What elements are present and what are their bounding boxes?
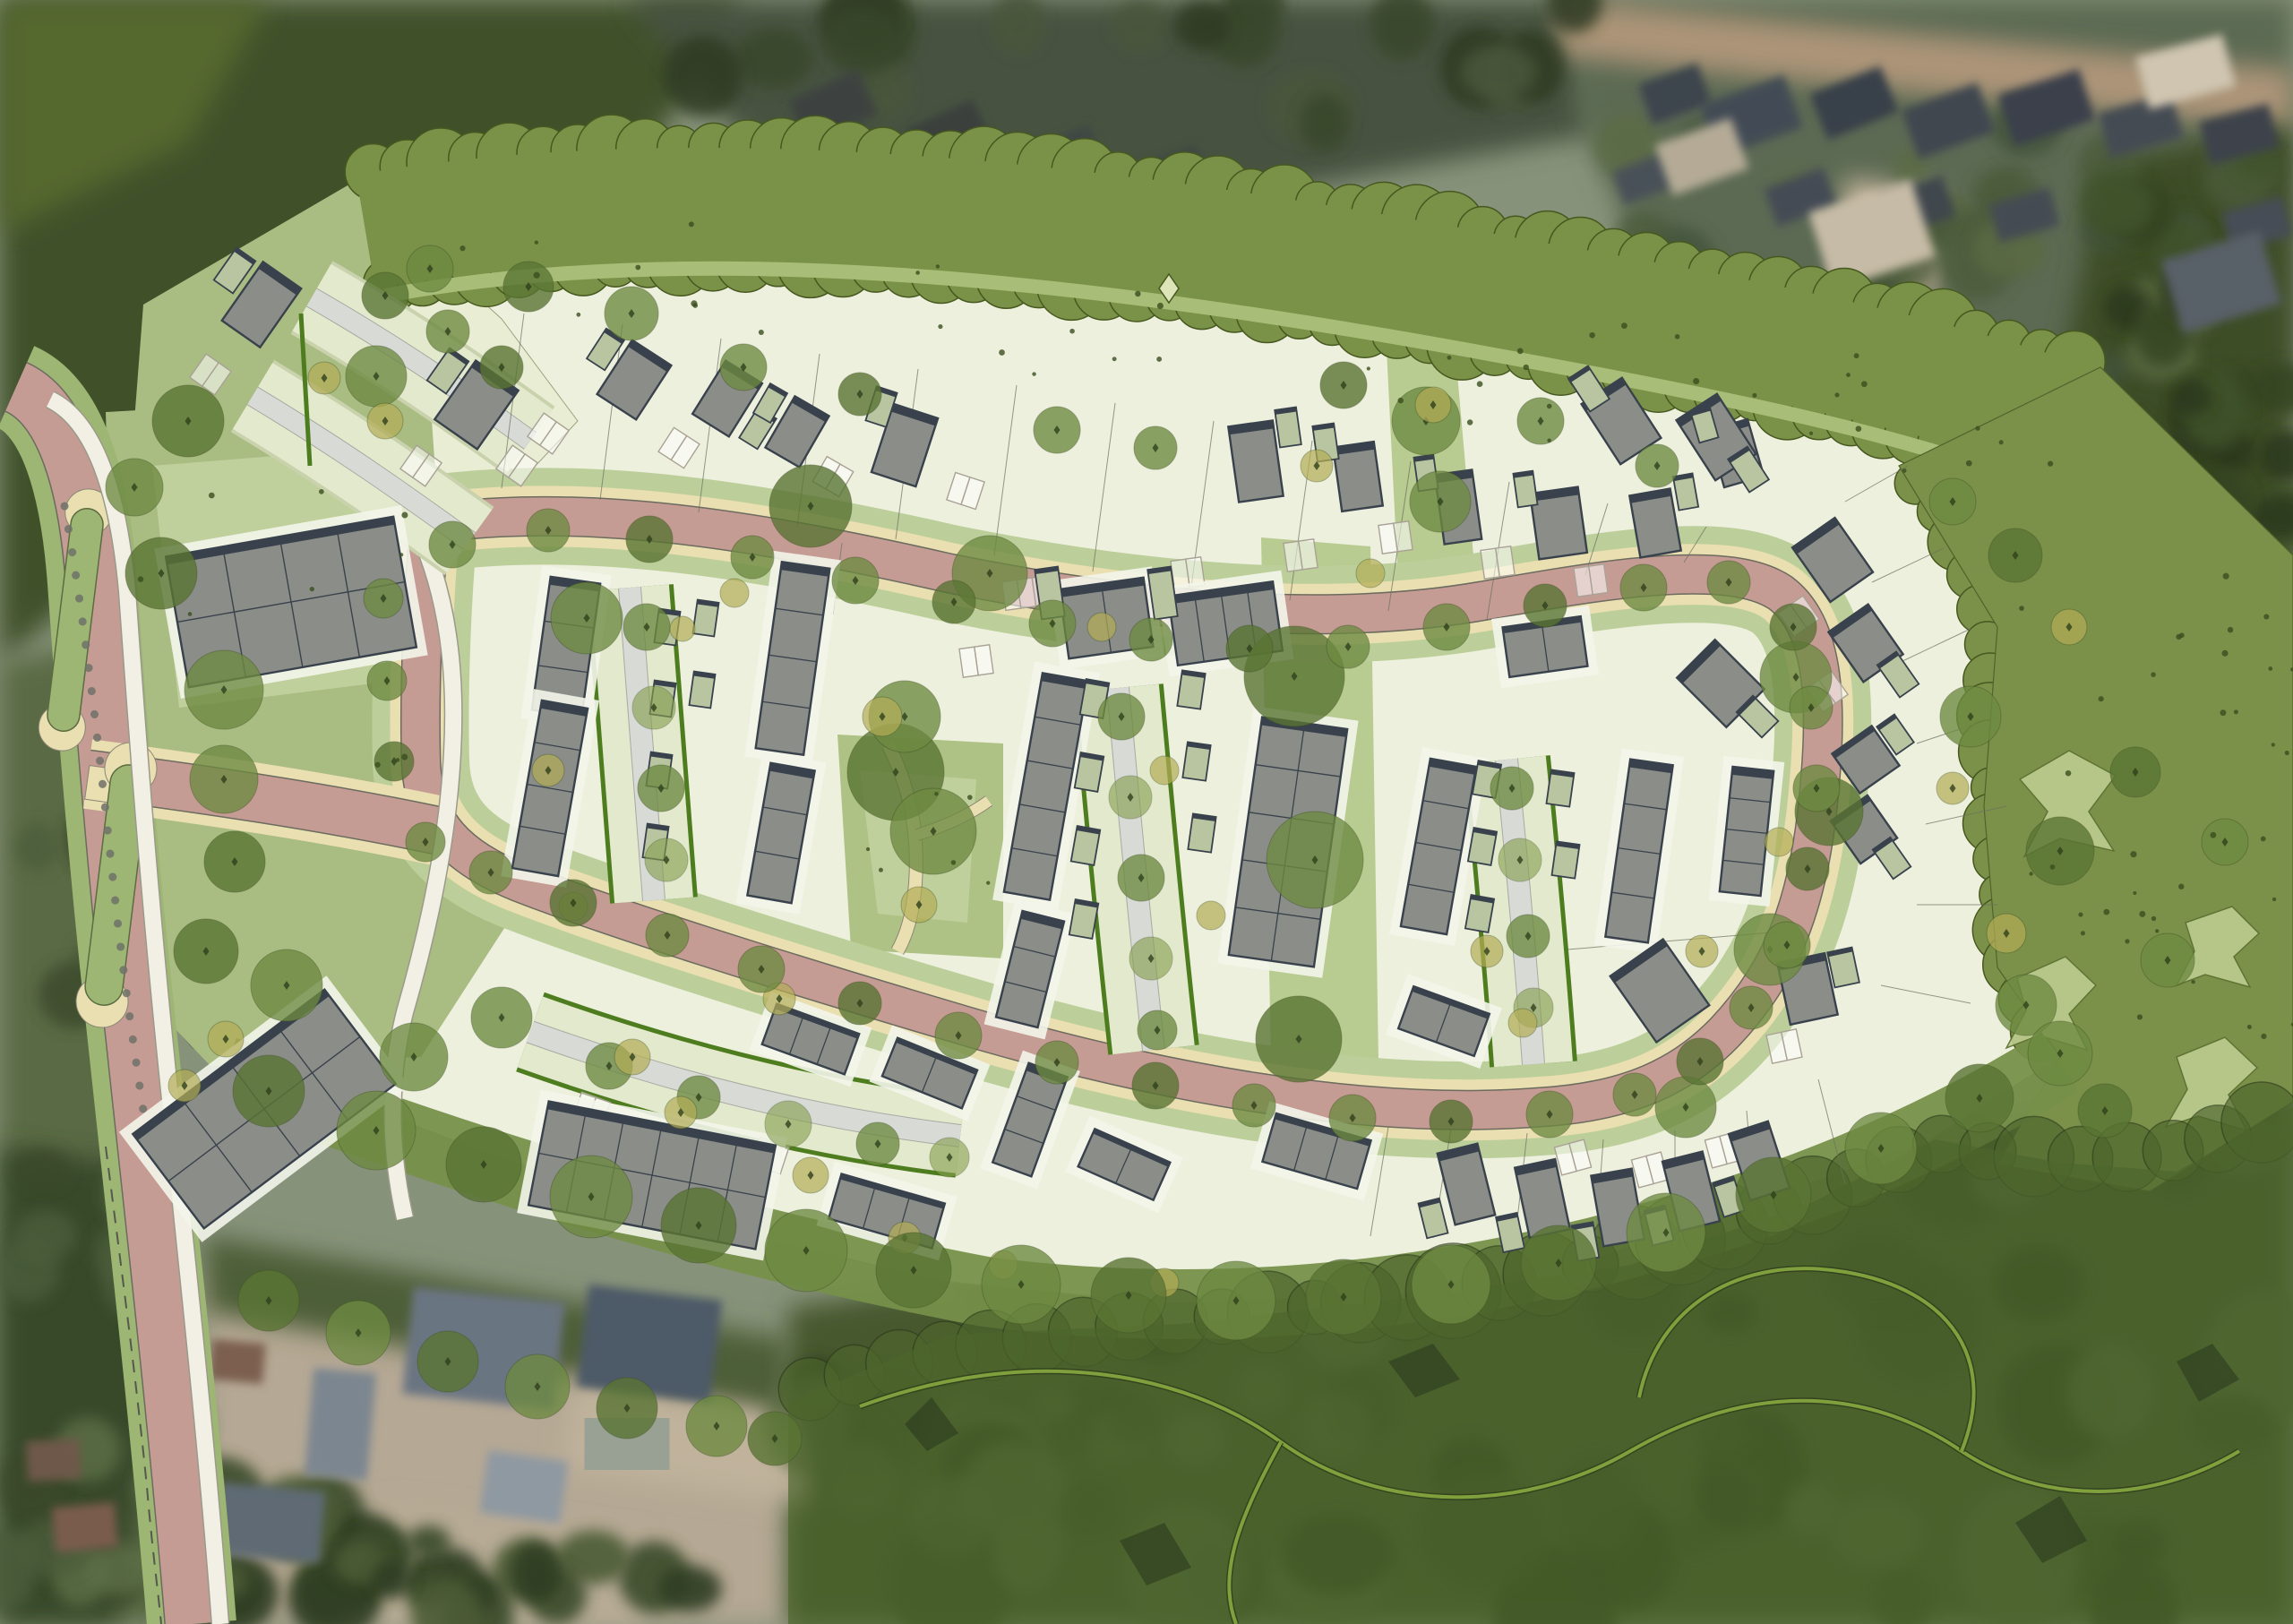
garage-outbuilding [1468,828,1497,865]
garage-outbuilding [1069,899,1099,939]
garage-outbuilding [1071,826,1101,865]
parking-stalls [1481,546,1515,579]
garage-outbuilding [1546,769,1574,806]
garage-outbuilding [689,672,715,709]
garage-outbuilding [1188,813,1215,852]
parking-stalls [959,645,993,677]
house-building [1228,420,1283,502]
garage-outbuilding [1075,752,1104,792]
masterplan-canvas [0,0,2293,1624]
parking-stalls [1766,1029,1802,1063]
house-building [1530,487,1587,560]
parking-stalls [1378,521,1413,554]
garage-outbuilding [1275,408,1301,448]
garage-outbuilding [1551,841,1579,878]
house-building [1333,442,1383,511]
garage-outbuilding [1182,742,1210,780]
garage-outbuilding [692,600,718,637]
garage-outbuilding [1465,895,1494,932]
parking-stalls [1574,564,1608,597]
garage-outbuilding [1513,471,1537,508]
site-plan-svg [0,0,2293,1624]
garage-outbuilding [1177,670,1205,709]
parking-stalls [1284,539,1318,571]
